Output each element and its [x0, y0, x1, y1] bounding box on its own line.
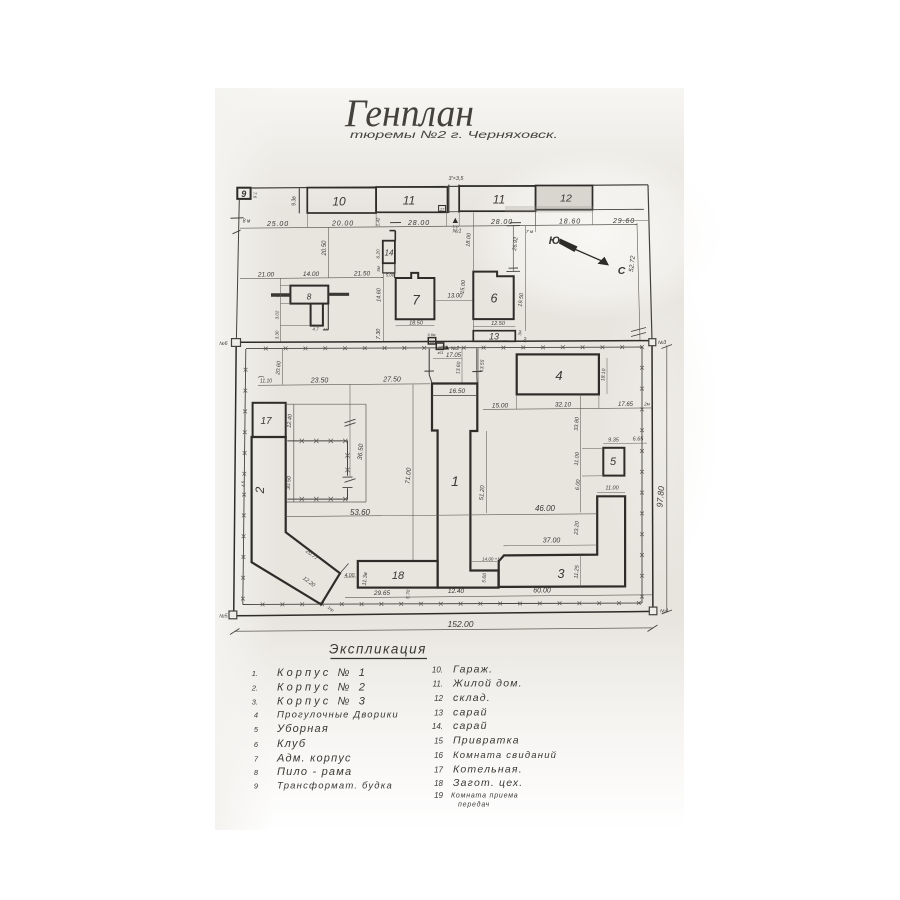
svg-text:Ю: Ю	[549, 235, 560, 247]
svg-text:4.00: 4.00	[345, 573, 355, 579]
svg-text:сарай: сарай	[453, 707, 488, 719]
svg-text:33.80: 33.80	[574, 416, 581, 431]
svg-text:5.00: 5.00	[386, 273, 395, 278]
svg-text:3м: 3м	[517, 330, 522, 336]
svg-text:1: 1	[451, 473, 459, 489]
svg-text:14.: 14.	[432, 722, 443, 731]
svg-text:18.50: 18.50	[409, 320, 424, 326]
svg-text:28.00: 28.00	[490, 219, 513, 226]
svg-text:12.40: 12.40	[448, 588, 465, 595]
svg-text:1м: 1м	[324, 327, 329, 332]
svg-text:3: 3	[558, 567, 565, 581]
svg-text:36.50: 36.50	[357, 443, 365, 460]
svg-text:13: 13	[434, 709, 443, 718]
svg-text:18.60: 18.60	[559, 218, 581, 225]
svg-text:Экспликация: Экспликация	[329, 642, 427, 657]
svg-text:16: 16	[434, 751, 443, 760]
svg-text:18.00: 18.00	[465, 232, 472, 247]
svg-text:29.60: 29.60	[612, 218, 635, 225]
svg-text:19: 19	[434, 791, 443, 800]
svg-text:12: 12	[434, 694, 443, 703]
svg-text:Прогулочные Дворики: Прогулочные Дворики	[277, 710, 399, 721]
svg-text:20.50: 20.50	[322, 240, 328, 257]
svg-text:Адм. корпус: Адм. корпус	[276, 753, 352, 765]
svg-text:27.50: 27.50	[382, 377, 401, 384]
svg-text:5.60: 5.60	[481, 573, 488, 583]
svg-text:12.50: 12.50	[491, 321, 506, 327]
svg-text:15: 15	[434, 737, 443, 746]
svg-text:9.35: 9.35	[608, 438, 620, 444]
svg-text:6.65: 6.65	[633, 437, 645, 443]
svg-text:3.30: 3.30	[274, 330, 279, 339]
svg-text:16.50: 16.50	[449, 388, 466, 395]
svg-text:18: 18	[434, 779, 443, 788]
svg-text:17.05: 17.05	[446, 353, 462, 359]
svg-text:Уборная: Уборная	[276, 723, 329, 735]
svg-text:11.25: 11.25	[574, 564, 581, 579]
svg-text:6.20: 6.20	[376, 249, 382, 259]
svg-text:Корпус № 1: Корпус № 1	[277, 667, 368, 679]
svg-text:71.00: 71.00	[405, 467, 413, 484]
svg-text:37.00: 37.00	[543, 538, 561, 545]
svg-text:46.00: 46.00	[535, 504, 556, 513]
svg-text:Котельная.: Котельная.	[453, 764, 523, 776]
svg-text:сарай: сарай	[453, 720, 488, 732]
svg-text:9: 9	[241, 189, 246, 199]
svg-text:23.50: 23.50	[310, 377, 329, 384]
svg-text:передач: передач	[458, 801, 490, 809]
svg-text:2.: 2.	[251, 684, 258, 693]
svg-text:15.00: 15.00	[460, 279, 467, 294]
svg-text:12: 12	[560, 193, 572, 205]
svg-text:Клуб: Клуб	[277, 738, 306, 750]
svg-text:Привратка: Привратка	[453, 735, 520, 747]
svg-text:1.42: 1.42	[376, 217, 381, 226]
svg-text:14: 14	[385, 249, 394, 258]
svg-text:17: 17	[260, 416, 272, 427]
svg-text:15.00: 15.00	[492, 402, 509, 409]
svg-text:3.: 3.	[252, 698, 258, 707]
svg-text:152.00: 152.00	[448, 619, 474, 629]
svg-text:7: 7	[412, 293, 420, 308]
svg-text:Корпус № 3: Корпус № 3	[277, 696, 368, 708]
svg-text:17: 17	[434, 766, 443, 775]
svg-text:18: 18	[392, 570, 405, 582]
svg-text:10: 10	[332, 195, 346, 209]
svg-text:11: 11	[493, 193, 505, 207]
svg-text:25.00: 25.00	[266, 221, 289, 228]
svg-text:14.60: 14.60	[376, 287, 382, 302]
svg-text:тюремы №2 г. Черняховск.: тюремы №2 г. Черняховск.	[350, 129, 558, 141]
svg-text:С: С	[618, 265, 626, 277]
svg-text:4.6: 4.6	[241, 480, 246, 486]
svg-text:20.00: 20.00	[331, 221, 354, 228]
svg-text:Загот. цех.: Загот. цех.	[453, 777, 523, 789]
svg-text:28.00: 28.00	[407, 220, 430, 227]
svg-text:11.3в: 11.3в	[362, 572, 369, 586]
svg-text:№1: №1	[452, 229, 461, 235]
svg-text:Жилой дом.: Жилой дом.	[452, 678, 523, 690]
svg-text:11.: 11.	[432, 680, 443, 689]
svg-text:18.10: 18.10	[600, 368, 607, 381]
svg-text:53.60: 53.60	[350, 508, 371, 517]
svg-text:8 м: 8 м	[243, 219, 251, 225]
svg-text:4: 4	[254, 711, 258, 720]
svg-text:1.: 1.	[252, 669, 258, 678]
svg-text:зб1: зб1	[437, 351, 444, 355]
svg-text:№5: №5	[219, 614, 227, 620]
svg-text:Гараж.: Гараж.	[453, 664, 493, 676]
svg-text:Корпус № 2: Корпус № 2	[277, 682, 368, 694]
svg-text:10.: 10.	[432, 666, 443, 675]
svg-text:60.00: 60.00	[533, 588, 551, 595]
svg-text:Комната свиданий: Комната свиданий	[453, 750, 557, 761]
svg-text:6: 6	[491, 292, 498, 306]
svg-text:№3: №3	[658, 340, 666, 346]
svg-text:9.3в: 9.3в	[292, 196, 298, 206]
svg-text:3'×3,5: 3'×3,5	[449, 176, 465, 182]
svg-text:5.70: 5.70	[405, 589, 412, 599]
svg-text:№6: №6	[219, 341, 227, 347]
svg-text:11.00: 11.00	[605, 486, 619, 492]
svg-text:13.60: 13.60	[455, 361, 462, 374]
svg-text:6.00: 6.00	[575, 478, 582, 490]
svg-text:склад.: склад.	[453, 692, 491, 704]
svg-text:5.6м: 5.6м	[428, 333, 436, 337]
svg-text:5м: 5м	[376, 266, 381, 272]
svg-text:Пило - рама: Пило - рама	[277, 766, 352, 778]
svg-text:4.7: 4.7	[312, 327, 319, 332]
svg-text:13.55: 13.55	[479, 359, 486, 372]
svg-text:5: 5	[610, 456, 617, 468]
svg-text:7.6: 7.6	[253, 192, 258, 199]
svg-text:14.00: 14.00	[303, 271, 320, 278]
svg-text:8: 8	[307, 292, 312, 302]
svg-text:14.00 +1: 14.00 +1	[482, 557, 500, 562]
svg-text:2м: 2м	[643, 402, 650, 407]
svg-text:21.50: 21.50	[353, 270, 371, 277]
svg-text:12.40: 12.40	[287, 413, 294, 428]
svg-text:17: 17	[440, 206, 445, 211]
svg-text:4: 4	[555, 368, 562, 383]
svg-text:Комната приема: Комната приема	[451, 793, 519, 800]
svg-text:17.65: 17.65	[618, 402, 634, 408]
svg-text:11: 11	[403, 194, 415, 208]
svg-text:97.80: 97.80	[654, 485, 666, 507]
svg-text:Трансформат. будка: Трансформат. будка	[277, 781, 393, 792]
svg-text:7 м: 7 м	[526, 229, 534, 235]
svg-text:21.00: 21.00	[257, 271, 275, 278]
svg-text:32.10: 32.10	[555, 402, 572, 409]
svg-text:11.10: 11.10	[260, 378, 272, 384]
svg-text:3.02: 3.02	[274, 310, 279, 319]
svg-text:29.65: 29.65	[373, 590, 391, 597]
svg-text:13: 13	[489, 331, 499, 341]
svg-text:2: 2	[253, 486, 267, 494]
svg-text:7.30: 7.30	[376, 328, 382, 340]
svg-text:№2: №2	[451, 346, 460, 352]
svg-text:11.00: 11.00	[574, 451, 581, 466]
